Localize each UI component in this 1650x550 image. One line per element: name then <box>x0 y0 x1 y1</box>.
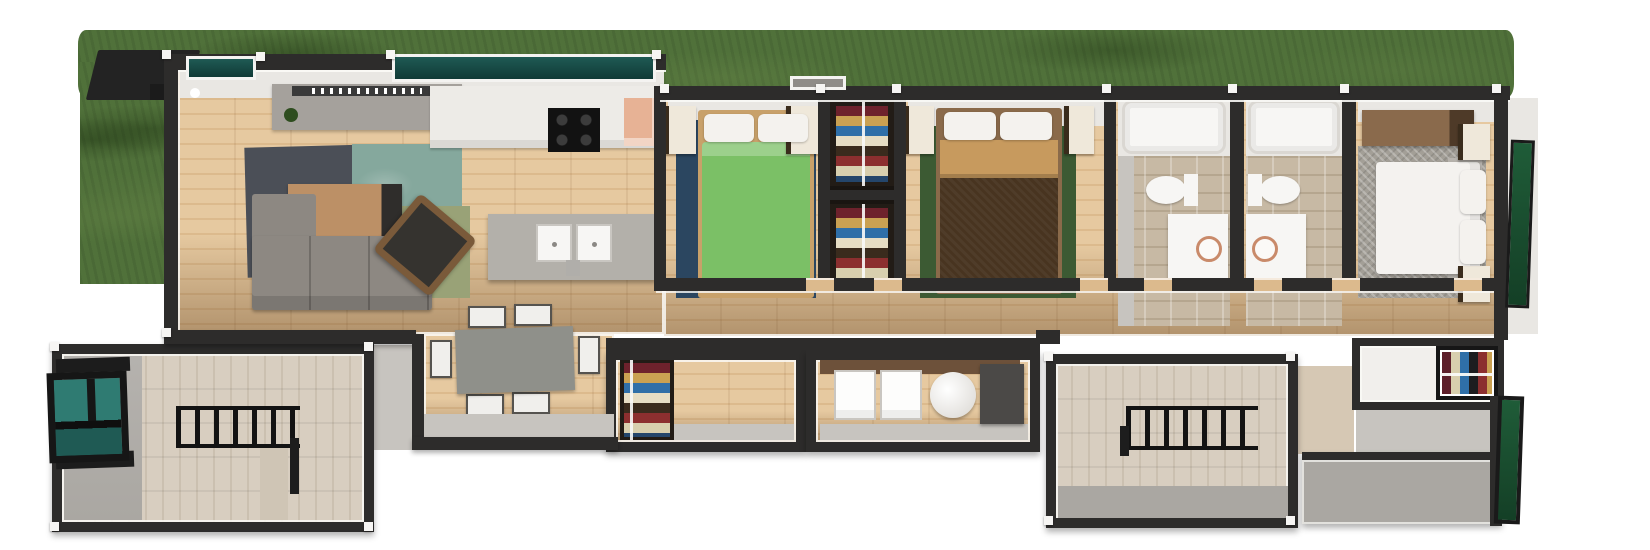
hall-closet-lower <box>826 200 898 290</box>
bathroom-a-side-wall <box>1118 156 1134 326</box>
dryer <box>880 370 922 420</box>
water-heater <box>930 372 976 418</box>
wall <box>654 86 666 291</box>
door-opening <box>1144 278 1172 291</box>
exterior-wall-bottom <box>164 330 416 344</box>
toilet-tank <box>1184 174 1198 206</box>
utility-rooms-wall <box>606 338 1040 350</box>
dining-chair <box>578 336 600 374</box>
washer <box>834 370 876 420</box>
pillow <box>1460 170 1486 214</box>
door-opening <box>1332 278 1360 291</box>
door-opening <box>874 278 902 291</box>
pillow <box>944 112 996 140</box>
right-deck-patio <box>1058 486 1288 518</box>
toilet <box>1260 176 1300 204</box>
door-opening <box>1080 278 1108 291</box>
wall <box>1104 86 1116 291</box>
island-faucet <box>566 260 580 276</box>
wall-cap <box>386 50 395 59</box>
teal-window <box>46 371 129 464</box>
closet-rail <box>862 204 865 286</box>
pergola-post <box>1120 426 1129 456</box>
laundry-wall-face <box>820 424 1028 440</box>
wall-cap <box>364 342 373 351</box>
wall <box>894 86 906 291</box>
wall-cap <box>162 50 171 59</box>
exterior-wall-bottom <box>1036 330 1060 344</box>
hanging-clothes-rail <box>1436 346 1498 400</box>
shelf-upright <box>630 360 633 440</box>
wall-cap <box>1102 84 1111 93</box>
nightstand <box>904 106 934 154</box>
dining-wall-face <box>424 414 614 438</box>
bedroom2-brown-bed <box>940 178 1058 290</box>
dining-table <box>455 326 575 394</box>
island-sink-left <box>536 224 572 262</box>
door-opening <box>1254 278 1282 291</box>
pergola <box>1126 406 1258 450</box>
wall <box>818 86 830 291</box>
wall-cap <box>1492 84 1501 93</box>
wall-cap <box>660 84 669 93</box>
island-sink-right <box>576 224 612 262</box>
wall-cap <box>892 84 901 93</box>
nightstand <box>1458 124 1490 160</box>
exterior-wall-top <box>660 86 1510 100</box>
sofa-chaise <box>252 194 316 242</box>
dining-chair <box>468 306 506 328</box>
closet-rail <box>1440 373 1494 376</box>
wall-cap <box>1228 84 1237 93</box>
wall-cap <box>652 50 661 59</box>
wall-cap <box>50 342 59 351</box>
corridor-wall <box>656 278 1506 291</box>
wall-cap <box>1044 516 1053 525</box>
closet-rail <box>862 102 865 186</box>
pillow <box>704 114 754 142</box>
vanity-sink <box>1196 236 1222 262</box>
pergola-post <box>290 438 299 494</box>
dining-wall <box>412 334 424 450</box>
potted-plant <box>284 108 298 122</box>
wall-cap <box>1340 84 1349 93</box>
closet-divider-wall <box>820 190 904 200</box>
dining-wall <box>412 437 618 450</box>
patio-green-glass-wall <box>1494 396 1524 525</box>
closet-wing-wall-face <box>1356 410 1496 458</box>
exterior-wall-left <box>164 54 178 336</box>
deck-connector-floor <box>1296 366 1354 454</box>
entry-door-light <box>190 88 200 98</box>
door-opening <box>1454 278 1482 291</box>
wall-cap <box>1286 516 1295 525</box>
wall <box>1342 86 1356 291</box>
dining-chair <box>512 392 550 414</box>
folded-clothes-shelf <box>620 360 674 440</box>
utility-cabinet <box>980 364 1024 424</box>
pergola <box>176 406 300 448</box>
bay-window-glass <box>186 56 256 80</box>
wall-cap <box>816 84 825 93</box>
bay-window-glass <box>392 54 656 82</box>
wall-cap <box>364 522 373 531</box>
vanity-sink <box>1252 236 1278 262</box>
toilet <box>1146 176 1186 204</box>
wall-cap <box>162 328 171 337</box>
dining-chair <box>514 304 552 326</box>
dining-chair <box>430 340 452 378</box>
nightstand <box>664 106 696 154</box>
pillow <box>758 114 808 142</box>
hall-closet-upper <box>826 98 898 190</box>
nightstand <box>1064 106 1094 154</box>
dining-corner-wall-face <box>368 345 416 450</box>
bedroom2-tan-blanket <box>940 140 1058 180</box>
wall-cap <box>50 522 59 531</box>
wall-cap <box>256 52 265 61</box>
pillow <box>1460 220 1486 264</box>
cooktop <box>548 108 600 152</box>
bathtub <box>1248 100 1340 154</box>
wall-cap <box>1286 352 1295 361</box>
toilet-tank <box>1248 174 1262 206</box>
bathtub <box>1122 100 1226 154</box>
privacy-wall-stub <box>260 448 288 520</box>
bedroom1-green-bed <box>702 142 810 282</box>
pillow <box>1000 112 1052 140</box>
door-opening <box>806 278 834 291</box>
wall <box>1230 86 1244 291</box>
wall-cap <box>1044 352 1053 361</box>
floorplan-render: 3D top-down architectural render of a lo… <box>0 0 1650 550</box>
rear-grey-patio <box>1302 452 1502 524</box>
dining-chair <box>466 394 504 416</box>
